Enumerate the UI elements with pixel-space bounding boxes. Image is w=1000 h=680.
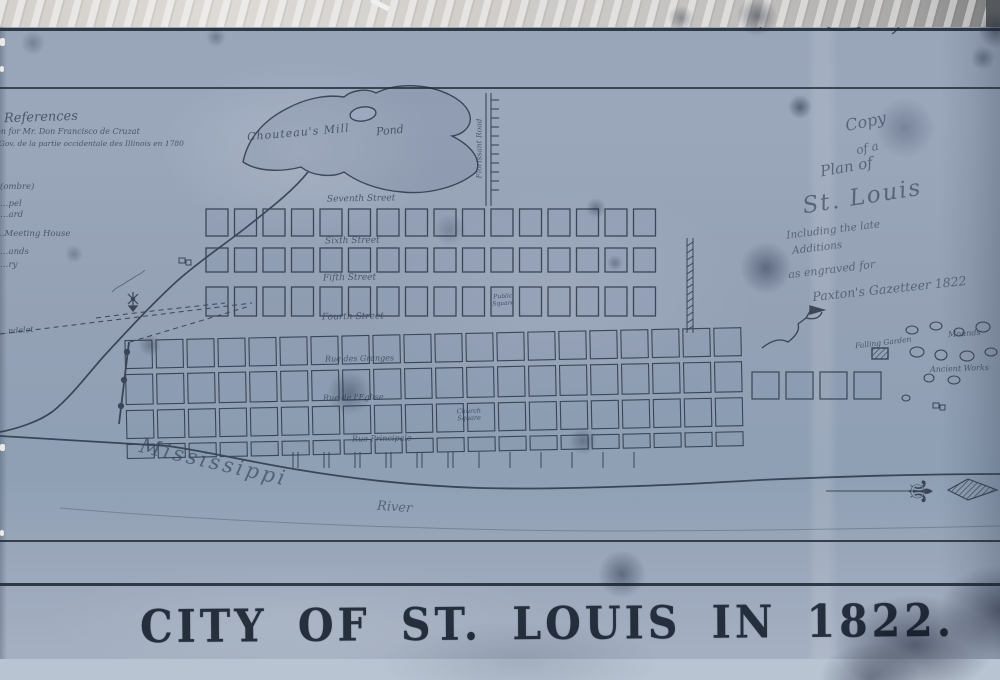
references-heading: References	[4, 109, 78, 127]
map-linework: ⚜	[0, 0, 1000, 680]
torn-paper-strip	[0, 0, 1000, 27]
references-note-1: …on for Mr. Don Francisco de Cruzat	[0, 127, 140, 136]
references-item: …ard	[0, 210, 23, 220]
edge-speck	[0, 444, 5, 451]
references-item: …pel	[0, 199, 22, 209]
creek-script-squiggle	[112, 270, 145, 292]
street-label-fifth: Fifth Street	[323, 273, 376, 284]
bottom-light-strip	[0, 659, 1000, 680]
dark-corner	[986, 0, 1000, 27]
public-square-label: Public Square	[489, 292, 518, 307]
street-label-seventh: Seventh Street	[327, 193, 395, 204]
street-label-fourth: Fourth Street	[322, 311, 384, 322]
addition-block-grid	[206, 209, 656, 316]
references-note-2: …t Gov. de la partie occidentale des Ill…	[0, 139, 184, 148]
references-item: …ands	[0, 247, 29, 257]
street-label-sixth: Sixth Street	[325, 236, 380, 247]
edge-speck	[0, 66, 4, 72]
public-square-line2: Square	[492, 299, 514, 307]
edge-speck	[0, 530, 4, 536]
references-item: (ombre)	[0, 182, 34, 192]
florissant-road-lines	[486, 93, 499, 206]
frame-rule-bottom-2	[0, 583, 1000, 586]
frame-rule-top-2	[0, 87, 1000, 89]
compass-pointer: ⚜	[826, 476, 997, 506]
windmill-icon	[128, 292, 138, 311]
street-label-rue-de-leglise: Rue de l'Eglise	[323, 392, 384, 402]
northeast-flag-sketch	[762, 306, 824, 348]
fleur-de-lis-icon: ⚜	[899, 476, 939, 506]
frame-rule-bottom-1	[0, 540, 1000, 542]
church-square-line2: Square	[457, 414, 481, 423]
references-item: …Meeting House	[0, 229, 70, 239]
north-hatched-road	[687, 238, 693, 333]
map-main-title: CITY OF ST. LOUIS IN 1822.	[140, 595, 860, 653]
frame-rule-top-1	[0, 28, 1000, 31]
old-town-block-grid	[125, 328, 743, 459]
hatched-building-symbol	[872, 348, 888, 359]
florissant-road-label: Florissant Road	[475, 94, 484, 204]
river-label-river: River	[377, 499, 413, 516]
river-inner-line	[60, 508, 1000, 531]
map-photograph: ⚜ Chief Clk Copy of a Plan of St. Louis …	[0, 0, 1000, 680]
street-label-rue-principale: Rue Principale	[352, 433, 412, 443]
references-item: …ry	[0, 260, 17, 270]
paper-streaks	[0, 0, 1000, 27]
street-label-rue-des-granges: Rue des Granges	[325, 353, 394, 363]
church-square-label: Church Square	[452, 407, 486, 422]
edge-speck	[0, 38, 5, 46]
east-extension-blocks	[752, 372, 881, 399]
